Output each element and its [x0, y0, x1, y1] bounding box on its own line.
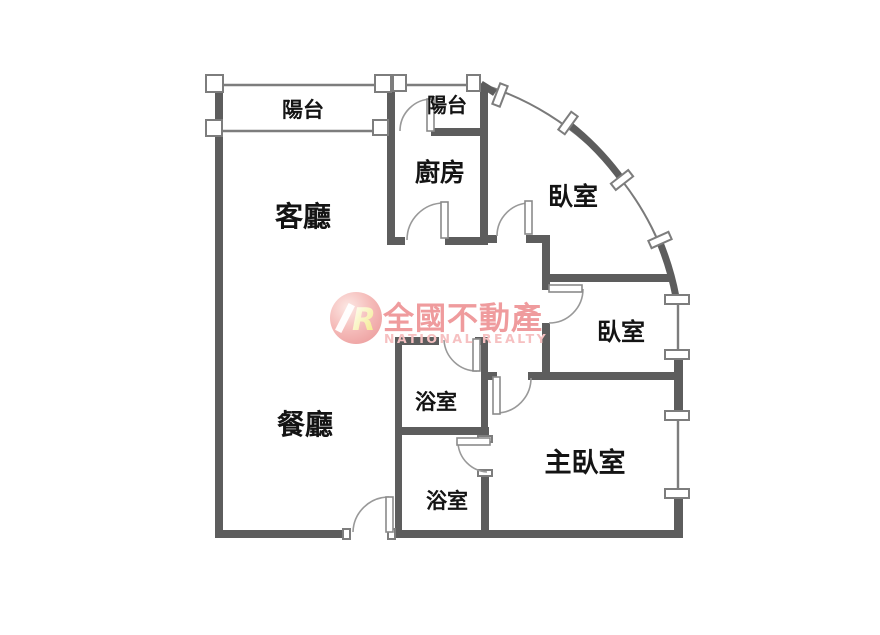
floor-plan-drawing: R 全國不動產 NATIONAL REALTY 陽台 陽台 廚房 臥室 客廳 臥…: [0, 0, 880, 635]
label-bedroom-1: 臥室: [548, 182, 598, 211]
wall-exterior-right-upper: [674, 357, 683, 415]
curve-wall-segment: [658, 238, 676, 297]
label-bathroom-1: 浴室: [415, 390, 457, 414]
wall-bedroom1-bottom-left: [483, 235, 497, 243]
bedroom1-door: [497, 201, 532, 236]
wall-exterior-left: [215, 77, 223, 538]
wall-bath1-bath2-divider: [395, 427, 488, 435]
brand-name-en: NATIONAL REALTY: [384, 331, 548, 346]
bedroom2-door: [549, 285, 583, 323]
label-balcony-2: 陽台: [427, 93, 467, 117]
balcony-post: [375, 75, 391, 92]
wall-bath1-right: [481, 337, 488, 437]
label-master-bedroom: 主臥室: [545, 447, 626, 479]
wall-bath2-right-lower: [481, 475, 489, 535]
wall-kitchen-bottom-right: [445, 237, 488, 245]
master-bedroom-door: [493, 377, 531, 414]
wall-kitchen-right: [480, 87, 488, 245]
wall-kitchen-bottom-left: [387, 237, 405, 245]
label-living-room: 客廳: [275, 200, 331, 233]
balcony-post: [206, 120, 222, 136]
wall-bath2-left: [395, 427, 402, 538]
balcony-post: [373, 120, 388, 135]
door-cap: [343, 529, 350, 539]
logo-letter: R: [352, 302, 376, 338]
window-tick: [492, 83, 507, 106]
label-bedroom-2: 臥室: [597, 318, 645, 346]
wall-exterior-bottom-right: [390, 530, 683, 538]
window-cap: [665, 489, 689, 498]
wall-bath1-left: [395, 337, 402, 435]
window-cap: [665, 350, 689, 359]
balcony-post: [467, 75, 480, 91]
watermark: R 全國不動產 NATIONAL REALTY: [330, 292, 548, 346]
bathroom2-door: [457, 438, 490, 472]
curve-wall-segment: [566, 122, 623, 181]
kitchen-door: [407, 202, 448, 240]
label-kitchen: 廚房: [415, 158, 465, 187]
wall-kitchen-top: [431, 128, 488, 136]
label-balcony-1: 陽台: [282, 98, 324, 122]
floor-plan-canvas: R 全國不動產 NATIONAL REALTY 陽台 陽台 廚房 臥室 客廳 臥…: [0, 0, 880, 635]
window-cap: [665, 411, 689, 420]
balcony-post: [206, 75, 223, 92]
label-dining-room: 餐廳: [277, 408, 333, 441]
window-cap: [665, 295, 689, 304]
wall-bedroom1-bedroom2-divider: [542, 274, 672, 282]
wall-balcony-divider: [387, 77, 395, 243]
label-bathroom-2: 浴室: [426, 489, 468, 513]
entrance-door: [353, 497, 393, 532]
wall-master-top: [528, 372, 683, 380]
wall-exterior-right-lower: [674, 496, 683, 538]
curve-window-ticks: [492, 83, 671, 248]
balcony-post: [393, 75, 406, 91]
wall-exterior-bottom-left: [215, 530, 347, 538]
